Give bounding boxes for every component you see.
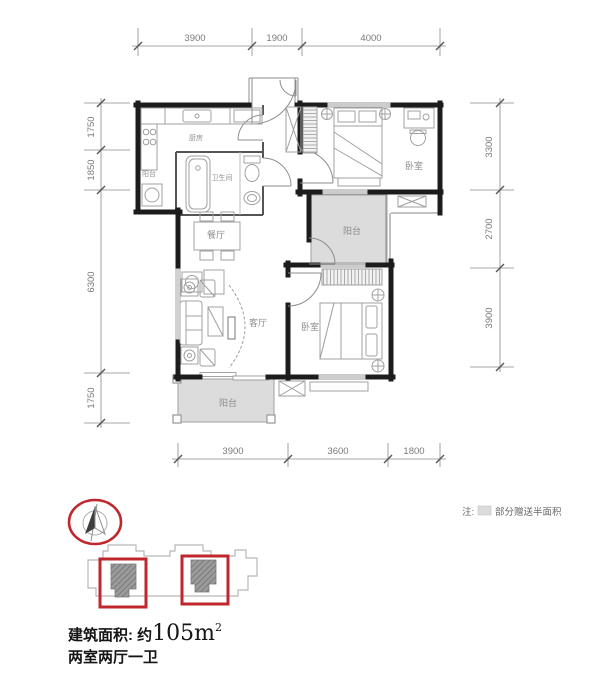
label-dining: 餐厅 xyxy=(207,229,225,240)
label-bedroom-bottom: 卧室 xyxy=(301,321,319,332)
label-balcony-left: 阳台 xyxy=(142,169,156,178)
dimension-chain-right: 3300 2700 3900 xyxy=(470,98,514,372)
unit-highlight-shape-2 xyxy=(191,560,216,592)
building-key xyxy=(88,545,257,607)
layout-line: 两室两厅一卫 xyxy=(68,648,158,666)
label-balcony-mid: 阳台 xyxy=(343,225,361,236)
bedroom-bottom-door xyxy=(288,273,321,306)
floorplan-page: 3900 1900 4000 1750 1850 6300 1750 xyxy=(0,0,600,675)
note-prefix: 注: xyxy=(462,506,474,518)
area-value: 105m xyxy=(152,621,215,646)
dimension-chain-left: 1750 1850 6300 1750 xyxy=(84,98,130,428)
wardrobe-bottom-bedroom xyxy=(322,269,382,285)
dimension-chain-bottom: 3900 3600 1800 xyxy=(172,443,446,467)
area-prefix: 建筑面积: 约 xyxy=(68,626,152,644)
label-bathroom: 卫生间 xyxy=(212,173,233,182)
dim-top-3: 4000 xyxy=(360,33,381,44)
dim-top-1: 3900 xyxy=(184,33,205,44)
legend-note: 注: 部分赠送半面积 xyxy=(462,506,562,518)
note-text: 部分赠送半面积 xyxy=(495,506,562,518)
dimension-chain-top: 3900 1900 4000 xyxy=(132,28,446,56)
bathroom-sink xyxy=(244,192,260,205)
bed-bottom xyxy=(320,303,382,359)
washer xyxy=(142,184,162,206)
area-superscript: 2 xyxy=(215,621,222,634)
dim-left-4: 1750 xyxy=(86,387,97,408)
dim-right-3: 3900 xyxy=(484,307,495,328)
bathroom-door xyxy=(263,158,291,186)
north-arrow-icon xyxy=(83,504,107,541)
wardrobe-top-bedroom xyxy=(303,107,317,153)
window-sill-bottom xyxy=(310,382,368,391)
compass xyxy=(69,500,121,544)
floorplan-drawing: 3900 1900 4000 1750 1850 6300 1750 xyxy=(0,0,600,675)
dim-right-2: 2700 xyxy=(484,218,495,239)
dim-left-3: 6300 xyxy=(86,271,97,292)
label-kitchen: 厨房 xyxy=(189,133,203,142)
dim-top-2: 1900 xyxy=(266,33,287,44)
bedroom-top-door xyxy=(300,150,333,183)
dim-bottom-3: 1800 xyxy=(403,446,424,457)
summary-block: 建筑面积: 约105m2 两室两厅一卫 xyxy=(68,621,222,666)
label-living: 客厅 xyxy=(249,317,267,328)
dim-left-2: 1850 xyxy=(86,159,97,180)
bathtub xyxy=(186,156,210,212)
dim-bottom-2: 3600 xyxy=(327,446,348,457)
bed-top xyxy=(334,108,382,186)
kitchen-door xyxy=(238,115,263,140)
desk-chair xyxy=(404,108,434,146)
toilet xyxy=(244,156,260,182)
dim-left-1: 1750 xyxy=(86,116,97,137)
nightstands-top xyxy=(322,109,391,120)
dim-bottom-1: 3900 xyxy=(222,446,243,457)
label-bedroom-top: 卧室 xyxy=(405,160,423,171)
label-balcony-bottom: 阳台 xyxy=(219,397,237,408)
gift-area-swatch xyxy=(478,506,491,515)
dim-right-1: 3300 xyxy=(484,136,495,157)
unit-highlight-shape-1 xyxy=(111,564,136,597)
radiator-ac-platform xyxy=(398,196,426,207)
radiator-balcony-bottom xyxy=(279,381,305,396)
tv-stand xyxy=(228,285,245,368)
area-line: 建筑面积: 约105m2 xyxy=(68,621,222,646)
